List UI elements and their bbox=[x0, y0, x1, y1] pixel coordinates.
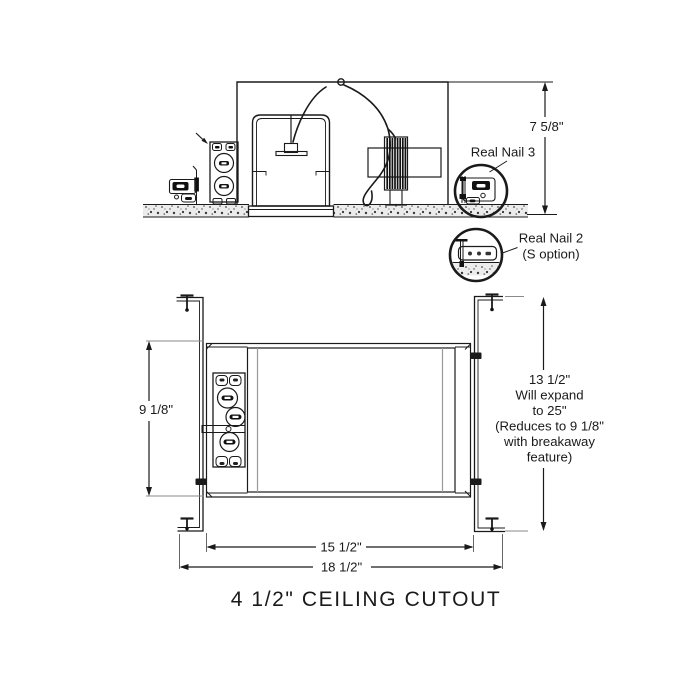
real-nail-2-detail-circle bbox=[450, 229, 518, 281]
diagram-page: 7 5/8" Real Nail 3 bbox=[0, 0, 700, 700]
dim-13-1-2-note: 13 1/2" Will expand to 25" (Reduces to 9… bbox=[495, 297, 604, 532]
bar-clamp bbox=[196, 479, 207, 486]
dim-9-1-8: 9 1/8" bbox=[139, 341, 204, 496]
note-line-5: with breakaway bbox=[503, 434, 595, 449]
ceiling-band-left bbox=[143, 205, 249, 218]
nail-bottom-left bbox=[181, 518, 194, 531]
dim-label-18-1-2: 18 1/2" bbox=[321, 560, 363, 575]
junction-box-plan bbox=[202, 373, 245, 467]
dim-label-9-1-8: 9 1/8" bbox=[139, 402, 173, 417]
real-nail-plate bbox=[170, 166, 199, 204]
note-line-6: feature) bbox=[527, 450, 572, 465]
leader-real-nail-2 bbox=[503, 248, 518, 254]
diagram-canvas: 7 5/8" Real Nail 3 bbox=[0, 0, 700, 700]
label-real-nail-2: Real Nail 2 bbox=[519, 231, 584, 246]
trim-ring bbox=[249, 206, 334, 217]
dim-label-15-1-2: 15 1/2" bbox=[320, 540, 362, 555]
transformer bbox=[368, 137, 441, 205]
dim-15-1-2: 15 1/2" bbox=[207, 533, 474, 555]
note-line-1: 13 1/2" bbox=[529, 372, 571, 387]
note-line-4: (Reduces to 9 1/8" bbox=[495, 419, 604, 434]
label-s-option: (S option) bbox=[522, 247, 579, 262]
mounting-pan bbox=[207, 344, 471, 498]
supply-wire bbox=[293, 79, 396, 206]
bottom-view: 9 1/8" 13 1/2" Will expand to 25" (Reduc… bbox=[139, 294, 604, 612]
label-real-nail-3: Real Nail 3 bbox=[471, 145, 536, 160]
bar-clamp bbox=[471, 353, 482, 360]
note-line-2: Will expand bbox=[515, 388, 583, 403]
bar-clamp bbox=[471, 479, 482, 486]
can-plan bbox=[248, 348, 456, 492]
top-view: 7 5/8" Real Nail 3 bbox=[143, 79, 583, 281]
dim-label-7-5-8: 7 5/8" bbox=[529, 119, 563, 134]
junction-box-side bbox=[196, 133, 238, 204]
lamp-socket bbox=[276, 115, 307, 156]
caption-ceiling-cutout: 4 1/2" CEILING CUTOUT bbox=[231, 588, 502, 611]
nail-bottom-right bbox=[486, 518, 499, 531]
hanger-bar-right bbox=[471, 294, 506, 532]
note-line-3: to 25" bbox=[532, 403, 566, 418]
